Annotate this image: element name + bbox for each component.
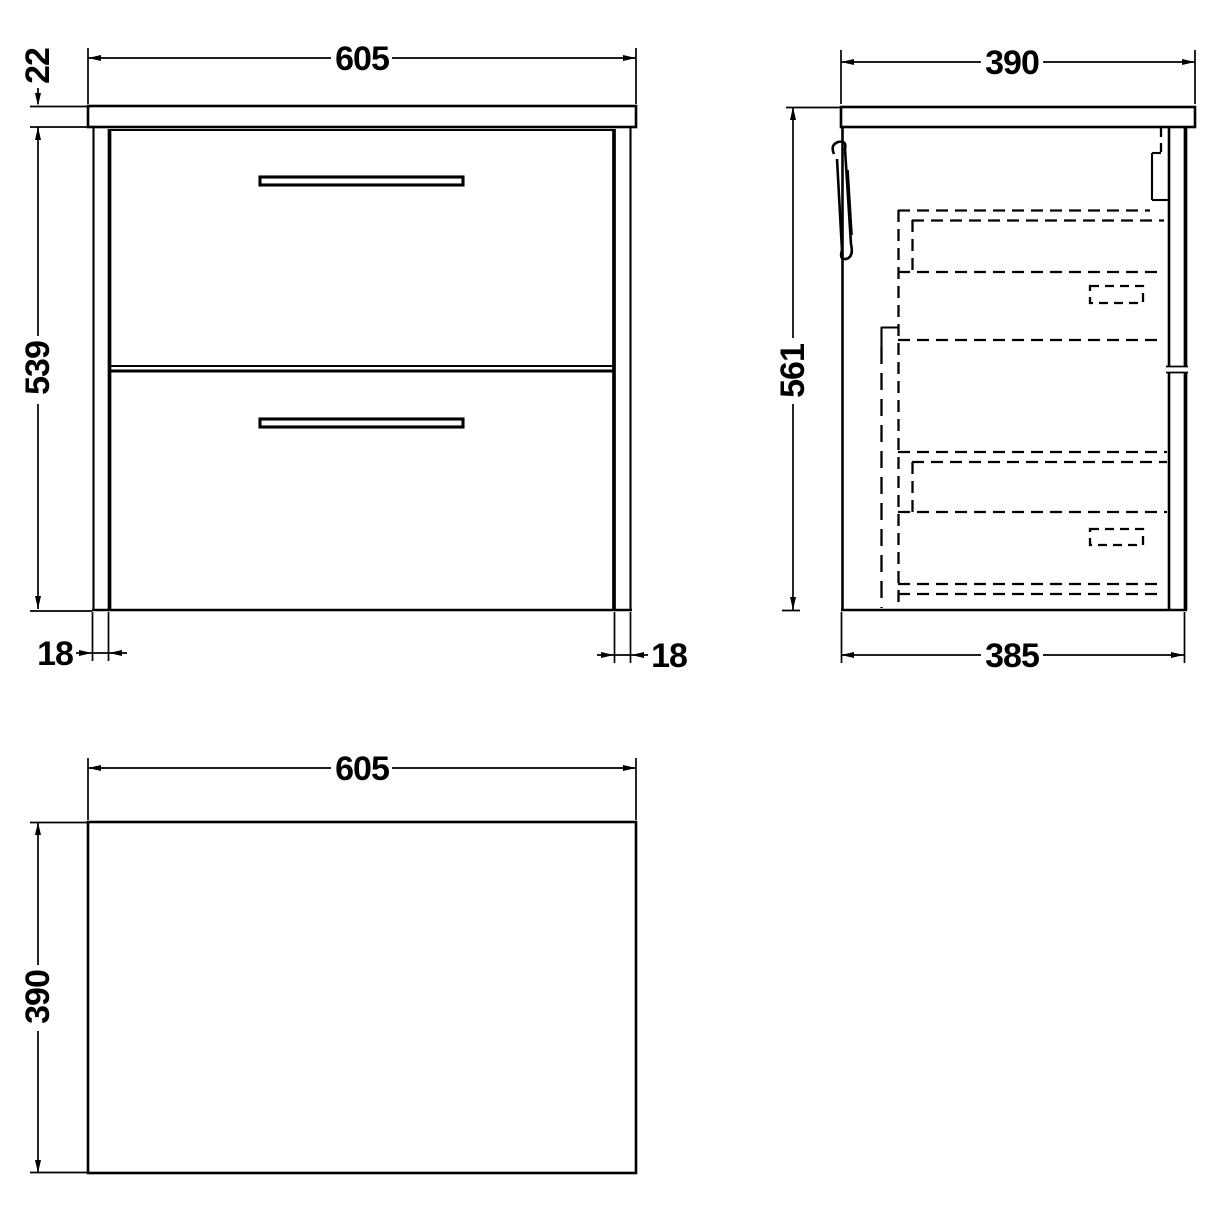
front-dim-worktop-thickness: 22 [19, 48, 92, 127]
front-dim-left-inset: 18 [37, 612, 127, 673]
side-carcass [841, 127, 1188, 610]
front-dim-width: 605 [88, 40, 636, 104]
plan-view: 605 390 [19, 750, 636, 1173]
plan-depth-label: 390 [19, 970, 57, 1024]
side-drawer-runner-top [1090, 286, 1143, 303]
front-width-label: 605 [335, 40, 389, 78]
front-right-inset-label: 18 [651, 637, 687, 675]
side-dim-height: 561 [774, 107, 841, 611]
side-dim-depth: 390 [841, 44, 1195, 104]
front-dim-height: 539 [19, 127, 92, 611]
side-worktop [841, 107, 1195, 127]
plan-width-label: 605 [335, 750, 389, 788]
side-view: 390 561 [774, 44, 1195, 675]
plan-dim-depth: 390 [19, 822, 88, 1173]
side-dim-bottom-depth: 385 [841, 612, 1185, 675]
front-view: 605 22 539 [19, 40, 687, 675]
side-bottom-depth-label: 385 [985, 637, 1039, 675]
side-height-label: 561 [774, 344, 812, 398]
front-worktop-thickness-label: 22 [19, 48, 57, 84]
front-worktop [88, 106, 636, 127]
side-depth-label: 390 [985, 44, 1039, 82]
plan-worktop-outline [88, 822, 636, 1173]
front-left-inset-label: 18 [37, 635, 73, 673]
front-height-label: 539 [19, 341, 57, 395]
front-drawer-handle-bottom [260, 419, 463, 427]
side-drawer-runner-bottom [1090, 529, 1143, 545]
side-hidden-drawers [898, 210, 1167, 603]
front-carcass [92, 127, 632, 610]
front-drawer-handle-top [260, 177, 463, 185]
vanity-technical-drawing: 605 22 539 [0, 0, 1224, 1224]
front-dim-right-inset: 18 [597, 612, 687, 675]
plan-dim-width: 605 [88, 750, 636, 820]
